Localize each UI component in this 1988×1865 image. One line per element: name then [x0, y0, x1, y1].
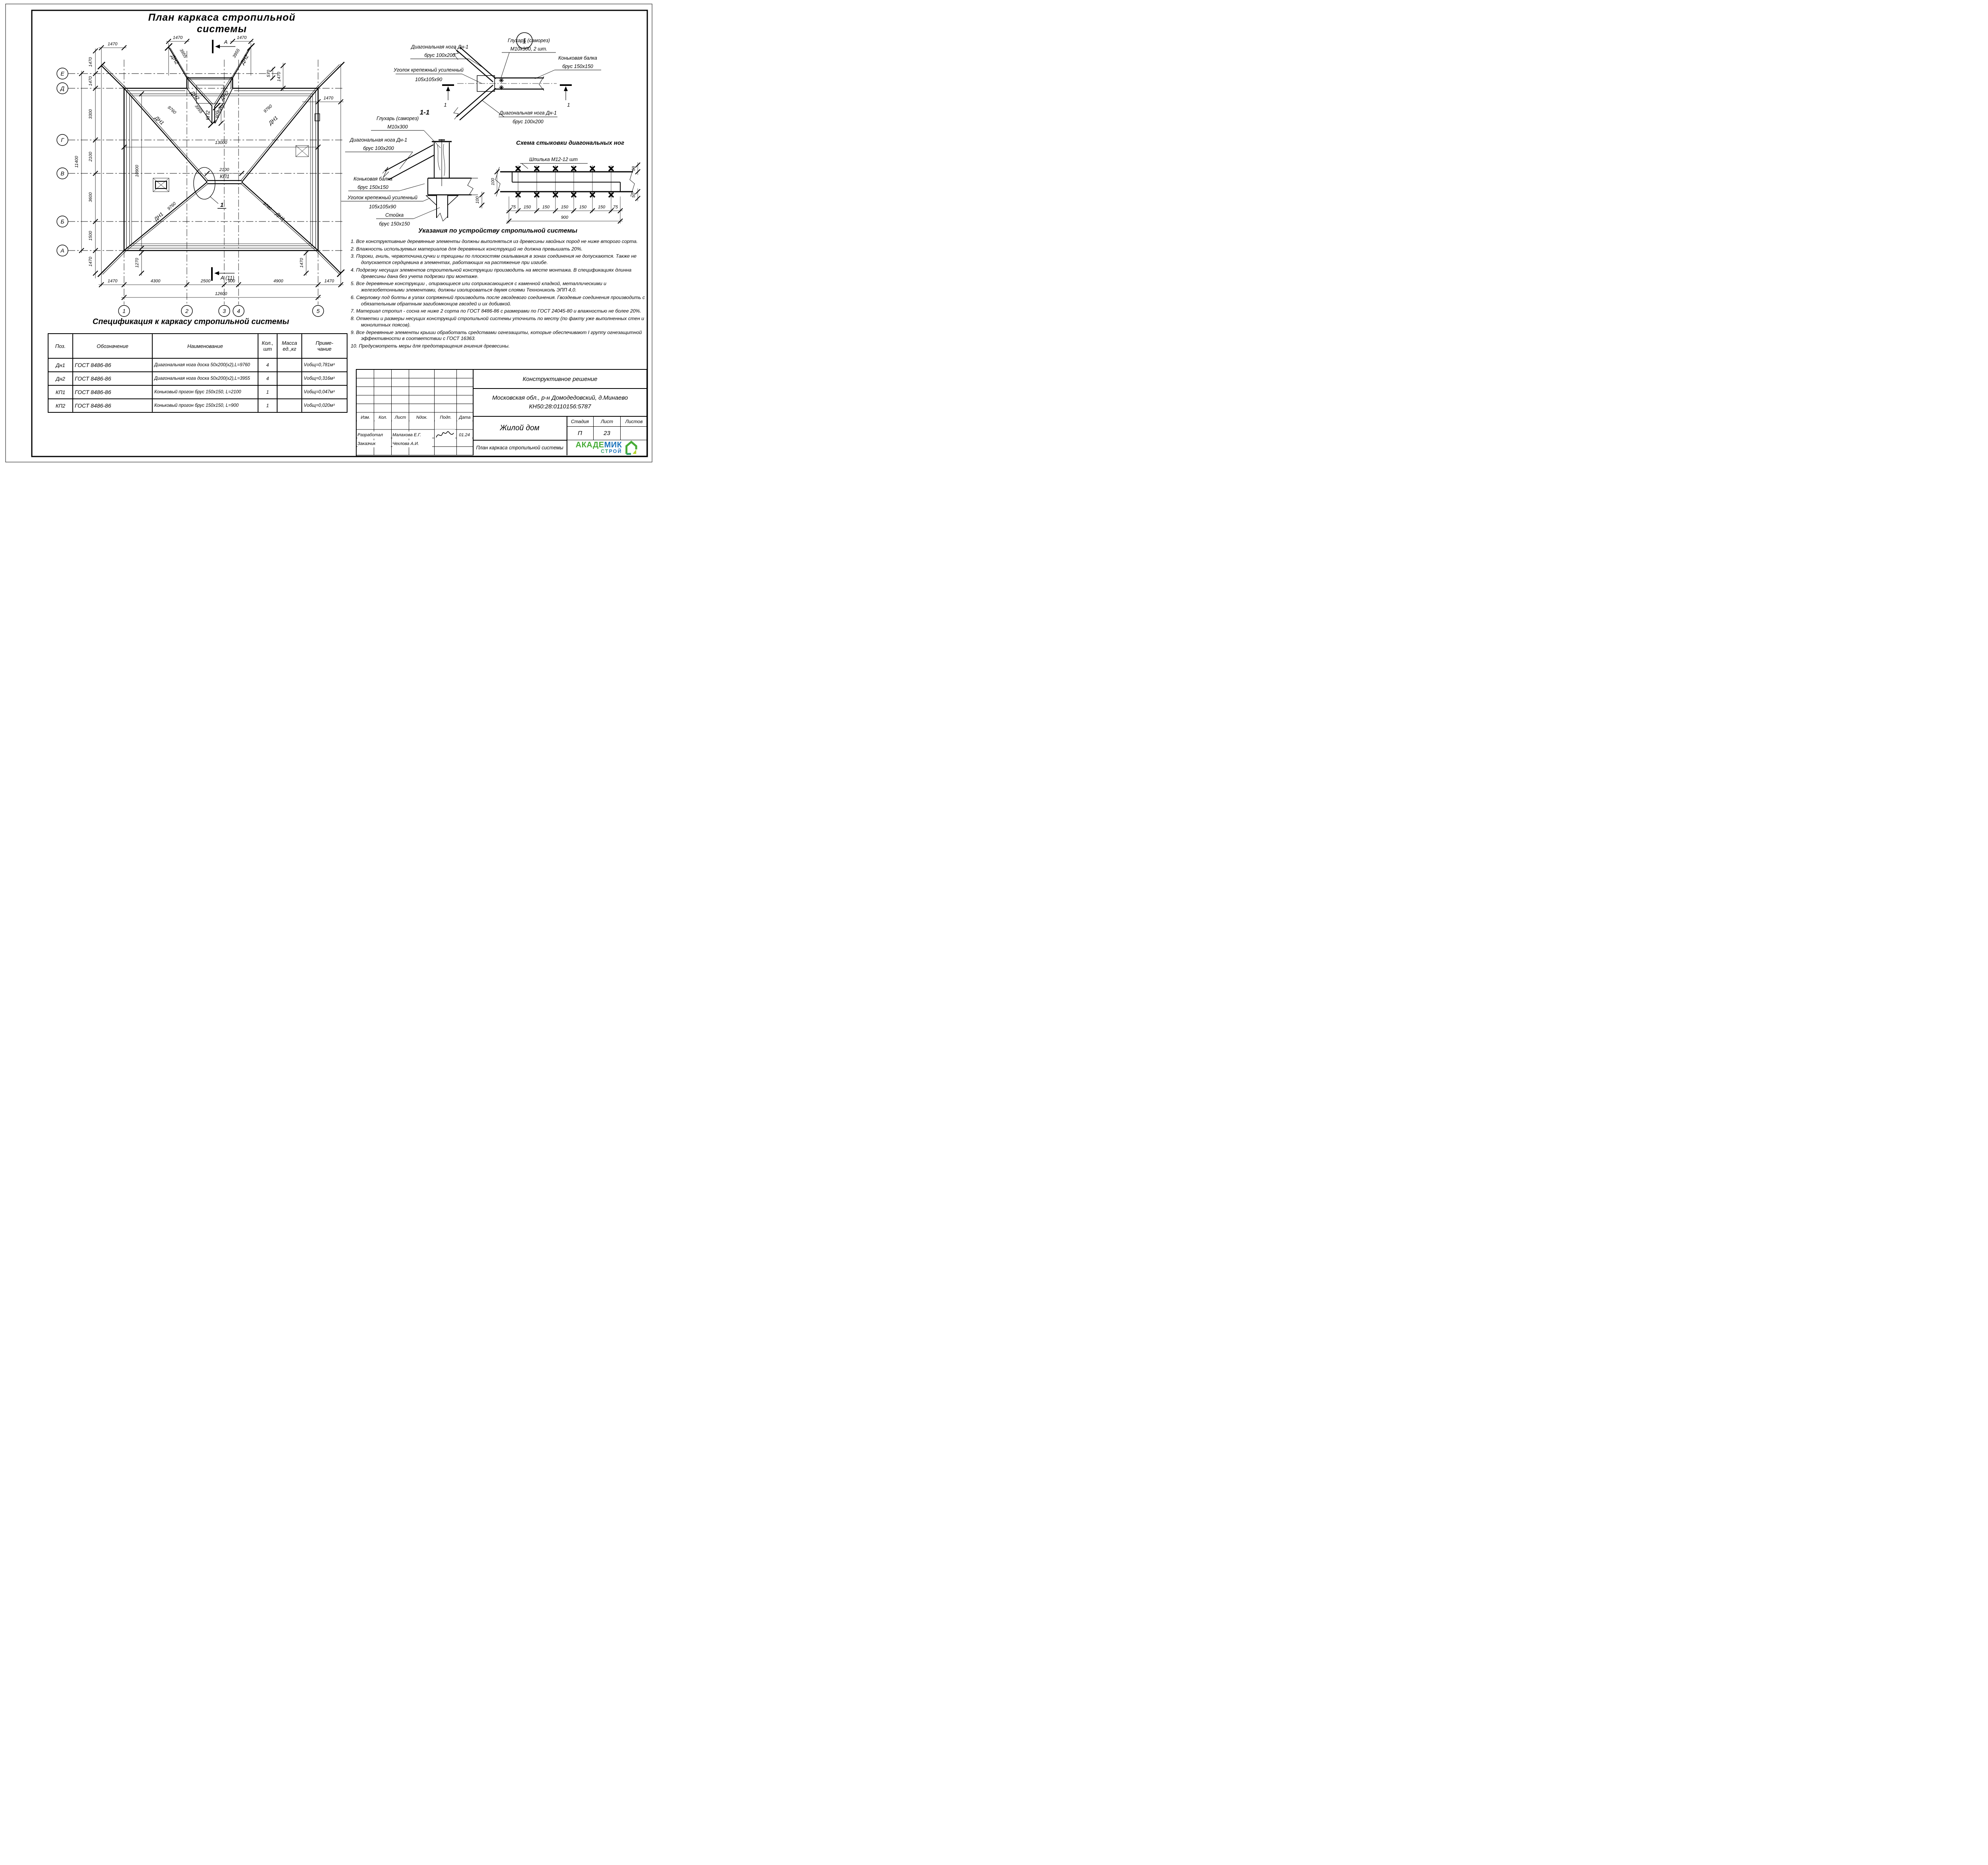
note-item: 2. Влажность используемых материалов для… — [351, 246, 645, 253]
axis-bubble-d: Д — [60, 85, 64, 91]
label-post-size: брус 150х150 — [379, 221, 410, 227]
dim-label: 100 — [491, 178, 495, 185]
axis-bubble-v: В — [60, 170, 64, 177]
dim-label: 2100 — [88, 152, 93, 162]
dim-label: 4900 — [274, 279, 283, 284]
label-bracket: Уголок крепежный усиленный — [347, 195, 417, 200]
label-screw-size: М10х300 — [387, 124, 408, 130]
title-block: Изм. Кол. Лист Nдок. Подп. Дата Разработ… — [356, 369, 647, 457]
spec-table: Поз. Обозначение Наименование Кол.,шт Ма… — [48, 333, 348, 413]
axis-bubble-1: 1 — [122, 308, 126, 314]
spec-row: Дн2 ГОСТ 8486-86 Диагональная нога доска… — [48, 372, 347, 385]
dim-label-100: 100 — [475, 196, 480, 204]
dim-label: 50 — [631, 192, 636, 198]
spec-cell-note: Vобщ=0,020м³ — [302, 399, 347, 412]
spec-cell-pos: КП1 — [48, 385, 73, 399]
dim-label: 3300 — [88, 109, 93, 119]
label-screw-size: М10х300, 2 шт. — [511, 46, 547, 52]
tb-developed-name: Малахова Е.Г. — [392, 431, 432, 439]
member-length: 9760 — [262, 201, 273, 212]
detail-1-cut-marks: 1 1 — [442, 85, 572, 108]
dim-label: 50 — [631, 166, 636, 171]
spec-cell-designation: ГОСТ 8486-86 — [73, 358, 152, 372]
tb-location-line1: Московская обл., р-н Домодедовский, д.Ми… — [492, 394, 628, 403]
member-label-kp2: КП2 — [205, 110, 211, 120]
tb-col-kol: Кол. — [375, 414, 391, 421]
label-ridge-beam-size: брус 150х150 — [357, 185, 388, 190]
label-diagonal-leg-size: брус 100х200 — [363, 146, 394, 151]
company-logo: АКАДЕМИК СТРОЙ — [567, 440, 647, 455]
dim-label: 2100 — [219, 167, 229, 172]
label-ridge-beam: Коньковая балка — [558, 55, 597, 61]
spec-cell-note: Vобщ=0,316м³ — [302, 372, 347, 385]
tb-stage-values: П 23 — [567, 426, 647, 440]
note-item: 9. Все деревянные элементы крыши обработ… — [351, 330, 645, 342]
member-label-dn1: ДН1 — [267, 115, 279, 126]
label-bracket: Уголок крепежный усиленный — [393, 67, 464, 73]
spec-cell-name: Диагональная нога доска 50х200(х2),L=976… — [152, 358, 258, 372]
section-1-1-title: 1-1 — [420, 109, 430, 116]
tb-customer-name: Чехлова А.И. — [392, 440, 432, 447]
logo-word-2b: РОЙ — [609, 449, 622, 454]
dim-label: 3600 — [88, 192, 93, 202]
spec-row: КП1 ГОСТ 8486-86 Коньковый прогон брус 1… — [48, 385, 347, 399]
spec-title: Спецификация к каркасу стропильной систе… — [52, 317, 330, 326]
label-ridge-beam: Коньковая балка — [353, 176, 392, 182]
cut-label: 1 — [444, 102, 447, 108]
section-1-1: 1-1 — [341, 109, 484, 227]
member-label-kp1: КП1 — [220, 173, 229, 179]
note-item: 4. Подрезку несущих элементов строительн… — [351, 267, 645, 280]
detail-callout-number: 1 — [220, 202, 223, 208]
tb-customer-label: Заказчик — [357, 440, 391, 447]
dim-label: 1500 — [88, 231, 93, 241]
dim-label: 150 — [598, 205, 606, 210]
axis-bubble-5: 5 — [316, 308, 320, 314]
note-item: 7. Материал стропил - сосна не ниже 2 со… — [351, 308, 645, 315]
spec-cell-qty: 4 — [258, 372, 277, 385]
tb-stage-header: Стадия Лист Листов — [567, 417, 647, 427]
tb-col-izm: Изм. — [357, 414, 374, 421]
spec-cell-mass — [277, 399, 302, 412]
dim-label: 150 — [524, 205, 531, 210]
spec-cell-note: Vобщ=0,781м³ — [302, 358, 347, 372]
dim-label: 12600 — [215, 291, 227, 296]
tb-developed-label: Разработал — [357, 431, 391, 439]
spec-cell-designation: ГОСТ 8486-86 — [73, 399, 152, 412]
note-item: 1. Все конструктивные деревянные элемент… — [351, 239, 645, 245]
tb-col-data: Дата — [457, 414, 472, 421]
spec-cell-qty: 1 — [258, 385, 277, 399]
spec-cell-qty: 1 — [258, 399, 277, 412]
spec-cell-name: Диагональная нога доска 50х200(х2),L=395… — [152, 372, 258, 385]
tb-col-list: Лист — [392, 414, 409, 421]
dim-label: 1470 — [324, 96, 334, 101]
tb-drawing-title: План каркаса стропильной системы — [473, 440, 567, 455]
tb-developed-date: 01.24 — [457, 431, 472, 439]
tb-sheets-value — [621, 426, 647, 440]
splice-scheme-title: Схема стыковки диагональных ног — [516, 140, 624, 146]
label-ridge-beam-size: брус 150х150 — [562, 64, 593, 69]
member-length: 3955 — [179, 48, 188, 59]
tb-sheet-value: 23 — [594, 426, 621, 440]
section-marker-top: А — [213, 39, 235, 53]
tb-doc-type: Конструктивное решение — [473, 370, 647, 389]
spec-cell-mass — [277, 385, 302, 399]
notes-block: Указания по устройству стропильной систе… — [351, 227, 645, 351]
label-diagonal-leg-size: брус 100х200 — [424, 52, 455, 58]
dim-label: 10900 — [135, 165, 140, 177]
dim-label: 1470 — [173, 35, 183, 40]
label-post: Стойка — [385, 212, 404, 218]
axis-bubble-2: 2 — [185, 308, 188, 314]
member-label-dn1: ДН1 — [153, 114, 165, 126]
section-label-a: А — [224, 39, 228, 45]
dim-label: 1470 — [277, 72, 282, 82]
note-item: 5. Все деревянные конструкции , опирающи… — [351, 281, 645, 293]
drawing-sheet: 1470 1470 3300 2100 3600 1500 1470 11400… — [0, 0, 658, 466]
label-diagonal-leg: Диагональная нога Дн-1 — [349, 137, 407, 143]
label-bracket-size: 105х105х90 — [369, 204, 396, 210]
spec-cell-mass — [277, 372, 302, 385]
tb-object: Жилой дом — [473, 417, 567, 441]
cut-label: 1 — [567, 102, 570, 108]
spec-cell-qty: 4 — [258, 358, 277, 372]
dim-label: 1470 — [237, 35, 247, 40]
member-length: 3955 — [232, 48, 241, 59]
spec-row: КП2 ГОСТ 8486-86 Коньковый прогон брус 1… — [48, 399, 347, 412]
logo-house-icon — [624, 440, 638, 455]
plan-title: План каркаса стропильной системы — [126, 12, 317, 35]
splice-scheme: Схема стыковки диагональных ног Шпилька … — [491, 140, 640, 223]
member-length: 9760 — [167, 201, 177, 212]
spec-cell-pos: Дн2 — [48, 372, 73, 385]
dim-label: 1470 — [108, 42, 118, 47]
spec-cell-designation: ГОСТ 8486-86 — [73, 385, 152, 399]
dim-label: 75 — [511, 205, 516, 210]
axis-bubble-b: Б — [60, 218, 64, 225]
label-screw: Глухарь (саморез) — [508, 38, 550, 43]
axis-bubble-4: 4 — [237, 308, 240, 314]
dim-label: 1470 — [88, 76, 93, 86]
dim-label: 2500 — [200, 279, 211, 284]
label-bracket-size: 105х105х90 — [415, 77, 442, 82]
note-item: 8. Отметки и размеры несущих конструкций… — [351, 316, 645, 328]
member-length: 9760 — [167, 105, 177, 115]
spec-cell-pos: Дн1 — [48, 358, 73, 372]
dim-label: 1470 — [324, 279, 334, 284]
spec-header-row: Поз. Обозначение Наименование Кол.,шт Ма… — [48, 334, 347, 358]
spec-cell-mass — [277, 358, 302, 372]
logo-word-1a: АКАДЕ — [576, 441, 604, 449]
label-stud: Шпилька М12-12 шт — [529, 157, 578, 162]
dim-label: 1270 — [135, 258, 140, 268]
note-item: 10. Предусмотреть меры для предотвращени… — [351, 343, 645, 350]
tb-stage-label: Стадия — [567, 417, 594, 426]
axis-bubble-e: Е — [60, 70, 64, 77]
member-length: 9760 — [263, 104, 274, 114]
label-diagonal-leg-2-size: брус 100х200 — [513, 119, 544, 124]
title-block-revision-grid: Изм. Кол. Лист Nдок. Подп. Дата Разработ… — [357, 370, 474, 455]
spec-cell-note: Vобщ=0,047м³ — [302, 385, 347, 399]
axis-bubbles: Е Д Г В Б А 1 2 3 4 5 — [57, 68, 324, 317]
dim-label: 11400 — [74, 155, 79, 168]
tb-stage-value: П — [567, 426, 594, 440]
signature — [435, 429, 455, 441]
diagonal-legs — [101, 47, 341, 274]
spec-block: Поз. Обозначение Наименование Кол.,шт Ма… — [48, 333, 348, 413]
dim-label: 1470 — [108, 279, 118, 284]
roof-openings — [153, 114, 320, 192]
tb-col-podp: Подп. — [435, 414, 456, 421]
dim-label: 1470 — [299, 258, 304, 268]
label-screw: Глухарь (саморез) — [377, 116, 419, 121]
dimension-labels: 1470 1470 3300 2100 3600 1500 1470 11400… — [74, 35, 334, 296]
dim-label: 1470 — [88, 57, 93, 67]
member-label-dn2: ДН2 — [218, 89, 230, 102]
note-item: 3. Пороки, гниль, червоточина,сучки и тр… — [351, 253, 645, 266]
spec-header-mass: Массаед.,кг — [277, 334, 302, 358]
tb-sheet-label: Лист — [594, 417, 621, 426]
section-label-a11: А (11) — [220, 275, 234, 281]
dimension-lines — [82, 41, 344, 297]
spec-cell-name: Коньковый прогон брус 150х150, L=900 — [152, 399, 258, 412]
dim-label: 150 — [542, 205, 550, 210]
dim-label: 4300 — [151, 279, 161, 284]
label-diagonal-leg-2: Диагональная нога Дн-1 — [499, 110, 557, 116]
logo-word-2a: СТ — [601, 449, 609, 454]
spec-header-note: Приме-чание — [302, 334, 347, 358]
spec-header-qty: Кол.,шт — [258, 334, 277, 358]
spec-header-name: Наименование — [152, 334, 258, 358]
dim-label: 75 — [613, 205, 618, 210]
section-1-1-labels: Глухарь (саморез) М10х300 Диагональная н… — [347, 116, 419, 227]
tb-location: Московская обл., р-н Домодедовский, д.Ми… — [473, 389, 647, 417]
note-item: 6. Сверловку под болты в узлах сопряжени… — [351, 295, 645, 307]
spec-cell-name: Коньковый прогон брус 150х150, L=2100 — [152, 385, 258, 399]
dim-label: 13000 — [215, 140, 227, 145]
spec-row: Дн1 ГОСТ 8486-86 Диагональная нога доска… — [48, 358, 347, 372]
dim-label: 1470 — [88, 256, 93, 266]
section-marker-bottom: А (11) — [212, 267, 235, 281]
title-block-info: Конструктивное решение Московская обл., … — [473, 370, 647, 455]
tb-location-line2: КН50:28:0110156:5787 — [529, 402, 591, 412]
axis-bubble-a: А — [60, 247, 64, 254]
spec-cell-pos: КП2 — [48, 399, 73, 412]
tb-sheets-label: Листов — [621, 417, 647, 426]
notes-title: Указания по устройству стропильной систе… — [351, 227, 645, 235]
spec-header-designation: Обозначение — [73, 334, 152, 358]
dim-label: 150 — [561, 205, 569, 210]
dim-label: 150 — [579, 205, 587, 210]
dim-label: 570 — [266, 70, 271, 77]
plan-drawing: 1470 1470 3300 2100 3600 1500 1470 11400… — [57, 35, 344, 317]
label-diagonal-leg: Диагональная нога Дн-1 — [410, 44, 468, 50]
dim-label: 900 — [561, 215, 569, 220]
axis-bubble-3: 3 — [223, 308, 226, 314]
spec-header-pos: Поз. — [48, 334, 73, 358]
spec-cell-designation: ГОСТ 8486-86 — [73, 372, 152, 385]
member-length: 3955 — [194, 104, 204, 115]
tb-col-ndok: Nдок. — [410, 414, 434, 421]
logo-word-1b: МИК — [604, 441, 622, 449]
